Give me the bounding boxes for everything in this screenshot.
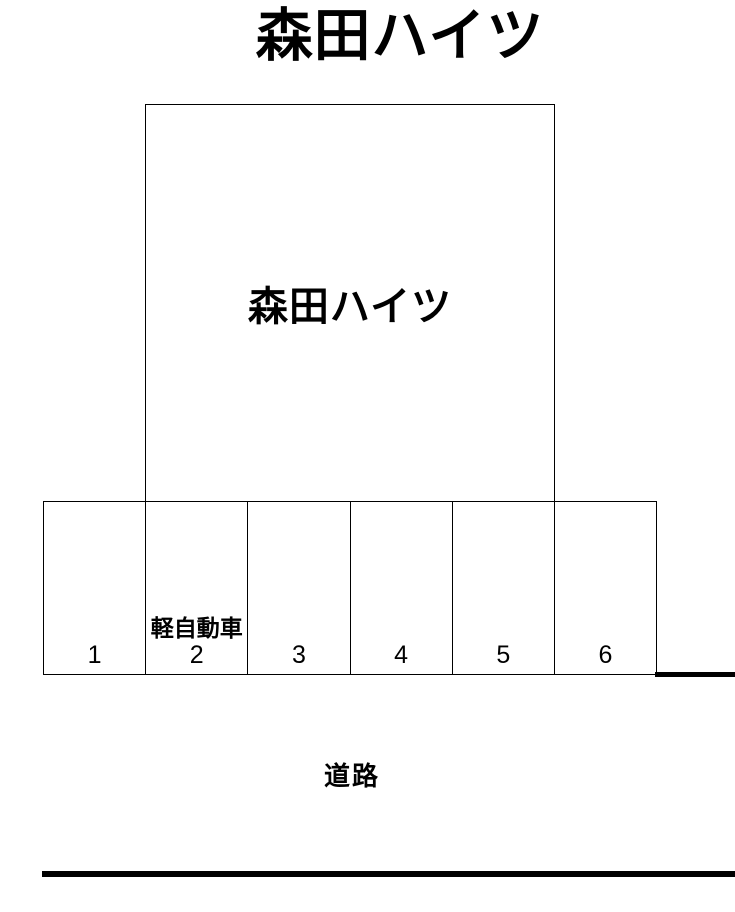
road-label: 道路 <box>324 756 380 793</box>
building-outline: 森田ハイツ <box>145 104 555 502</box>
parking-row: 1 軽自動車 2 3 4 5 6 <box>43 501 657 675</box>
building-label: 森田ハイツ <box>248 274 452 332</box>
space-number: 1 <box>88 641 102 669</box>
curb-line-segment <box>655 672 735 677</box>
space-number: 4 <box>394 641 408 669</box>
parking-space-6: 6 <box>555 502 656 674</box>
space-note-kei-car: 軽自動車 <box>151 615 243 641</box>
parking-layout-diagram: 森田ハイツ 森田ハイツ 1 軽自動車 2 3 4 5 6 道路 <box>0 0 735 912</box>
parking-space-3: 3 <box>248 502 350 674</box>
space-number: 3 <box>292 641 306 669</box>
road-edge-line <box>42 871 735 877</box>
parking-space-2: 軽自動車 2 <box>146 502 248 674</box>
parking-space-4: 4 <box>351 502 453 674</box>
space-number: 6 <box>598 641 612 669</box>
parking-space-5: 5 <box>453 502 555 674</box>
space-number: 2 <box>190 641 204 669</box>
space-number: 5 <box>496 641 510 669</box>
page-title: 森田ハイツ <box>256 4 545 70</box>
parking-space-1: 1 <box>44 502 146 674</box>
